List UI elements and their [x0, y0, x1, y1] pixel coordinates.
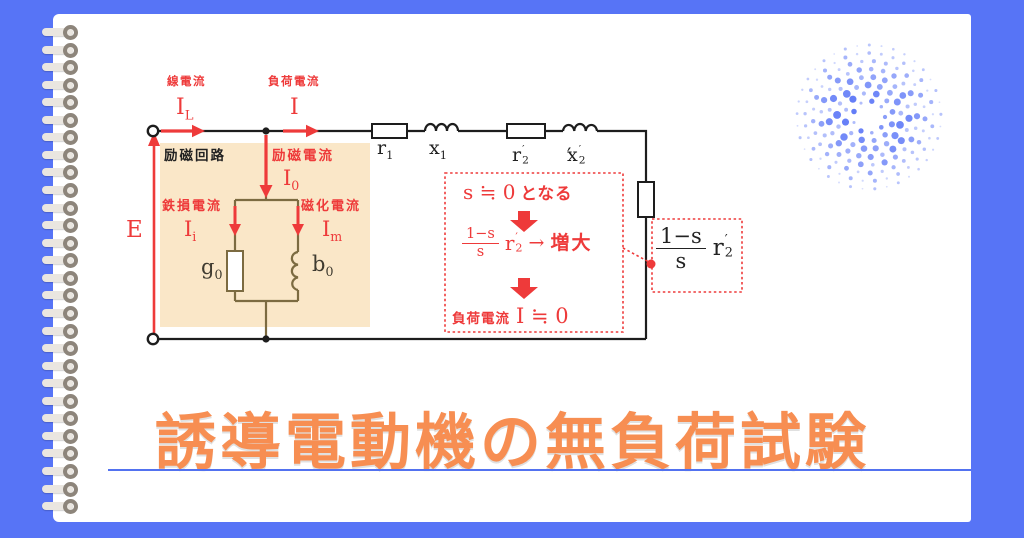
annotation-fraction: 1−s s [462, 227, 499, 260]
binder-ring-loop [63, 411, 78, 426]
binder-ring [42, 130, 78, 144]
binder-ring-loop [63, 288, 78, 303]
binder-ring-loop [63, 165, 78, 180]
binder-ring [42, 95, 78, 109]
line-current-symbol: IL [176, 96, 193, 119]
load-current-symbol: I [290, 96, 299, 119]
g0-resistor [227, 251, 243, 291]
annotation-line1: s ≒ 0 となる [463, 182, 572, 203]
input-terminal-bottom [148, 334, 158, 344]
binder-ring-loop [63, 376, 78, 391]
binder-ring-loop [63, 271, 78, 286]
title-underline [108, 469, 971, 471]
binder-ring [42, 201, 78, 215]
binder-ring [42, 429, 78, 443]
x2-label-main: x′2 [567, 146, 585, 167]
binder-ring [42, 288, 78, 302]
annotation-line3-caption: 負荷電流 [452, 312, 510, 326]
annotation-line3-math: I ≒ 0 [516, 305, 569, 327]
load-fraction: 1−s s [656, 225, 706, 272]
binder-ring [42, 253, 78, 267]
line-current-caption: 線電流 [167, 76, 206, 88]
halftone-dot-logo [790, 40, 950, 200]
magnetizing-symbol: Im [322, 218, 342, 240]
binder-ring-loop [63, 25, 78, 40]
annotation-line1-math: s ≒ 0 [463, 182, 515, 203]
binder-ring-loop [63, 429, 78, 444]
binder-ring-loop [63, 183, 78, 198]
binder-ring [42, 60, 78, 74]
binder-ring [42, 394, 78, 408]
binder-ring-loop [63, 148, 78, 163]
junction-bottom [262, 335, 269, 342]
binder-ring-loop [63, 130, 78, 145]
load-resistor [638, 182, 654, 217]
excitation-circuit-caption: 励磁回路 [164, 149, 226, 163]
binder-ring [42, 306, 78, 320]
spiral-binding [0, 0, 100, 538]
binder-ring [42, 464, 78, 478]
binder-ring-loop [63, 218, 78, 233]
g0-label: g0 [201, 256, 222, 278]
right-arrow-glyph: → [529, 234, 545, 254]
binder-ring [42, 446, 78, 460]
r1-label: r1 [377, 139, 393, 159]
binder-ring-loop [63, 446, 78, 461]
binder-ring-loop [63, 324, 78, 339]
binder-ring [42, 78, 78, 92]
annotation-line2-text: 増大 [550, 234, 592, 254]
load-formula: 1−s s r′2 [656, 225, 733, 272]
x1-label: x1 [429, 139, 447, 159]
circuit-diagram [100, 65, 780, 365]
iron-loss-caption: 鉄損電流 [162, 199, 222, 213]
binder-ring-loop [63, 359, 78, 374]
excitation-current-caption: 励磁電流 [272, 149, 334, 163]
binder-ring [42, 359, 78, 373]
input-terminal-top [148, 126, 158, 136]
r2-label: r′2 [512, 146, 529, 167]
binder-ring-loop [63, 341, 78, 356]
binder-ring [42, 324, 78, 338]
r2-resistor [507, 124, 545, 138]
binder-ring [42, 236, 78, 250]
x2-inductor [563, 124, 597, 131]
binder-ring [42, 113, 78, 127]
binder-ring [42, 376, 78, 390]
connector-dot [647, 260, 656, 269]
blue-background: 線電流 IL 負荷電流 I 励磁回路 励磁電流 I0 鉄損電流 Ii 磁化電流 … [0, 0, 1024, 538]
load-current-caption: 負荷電流 [268, 76, 320, 88]
excitation-current-symbol: I0 [283, 167, 299, 189]
annotation-line3: 負荷電流 I ≒ 0 [452, 305, 569, 327]
binder-ring [42, 411, 78, 425]
r1-resistor [372, 124, 407, 138]
binder-ring-loop [63, 43, 78, 58]
iron-loss-symbol: Ii [184, 218, 196, 240]
binder-ring [42, 482, 78, 496]
binder-ring-loop [63, 394, 78, 409]
load-r2-symbol: r′2 [713, 236, 733, 262]
binder-ring [42, 218, 78, 232]
junction-top [262, 127, 269, 134]
binder-ring [42, 499, 78, 513]
binder-ring-loop [63, 306, 78, 321]
binder-ring [42, 43, 78, 57]
binder-ring [42, 183, 78, 197]
binder-ring [42, 271, 78, 285]
annotation-line2: 1−s s r′2 → 増大 [462, 227, 592, 260]
binder-ring-loop [63, 499, 78, 514]
annotation-line1-text: となる [520, 186, 572, 203]
down-block-arrow-2 [510, 278, 538, 299]
emf-label: E [126, 218, 143, 242]
binder-ring-loop [63, 60, 78, 75]
binder-ring-loop [63, 78, 78, 93]
b0-label: b0 [312, 253, 333, 275]
binder-ring [42, 341, 78, 355]
binder-ring-loop [63, 201, 78, 216]
binder-ring [42, 165, 78, 179]
binder-ring-loop [63, 95, 78, 110]
page-title: 誘導電動機の無負荷試験 [155, 392, 870, 481]
binder-ring-loop [63, 236, 78, 251]
binder-ring-loop [63, 113, 78, 128]
annotation-r2-symbol: r′2 [505, 233, 523, 255]
binder-ring [42, 148, 78, 162]
binder-ring-loop [63, 482, 78, 497]
magnetizing-caption: 磁化電流 [301, 199, 361, 213]
binder-ring-loop [63, 464, 78, 479]
binder-ring-loop [63, 253, 78, 268]
x1-inductor [425, 124, 458, 131]
binder-ring [42, 25, 78, 39]
